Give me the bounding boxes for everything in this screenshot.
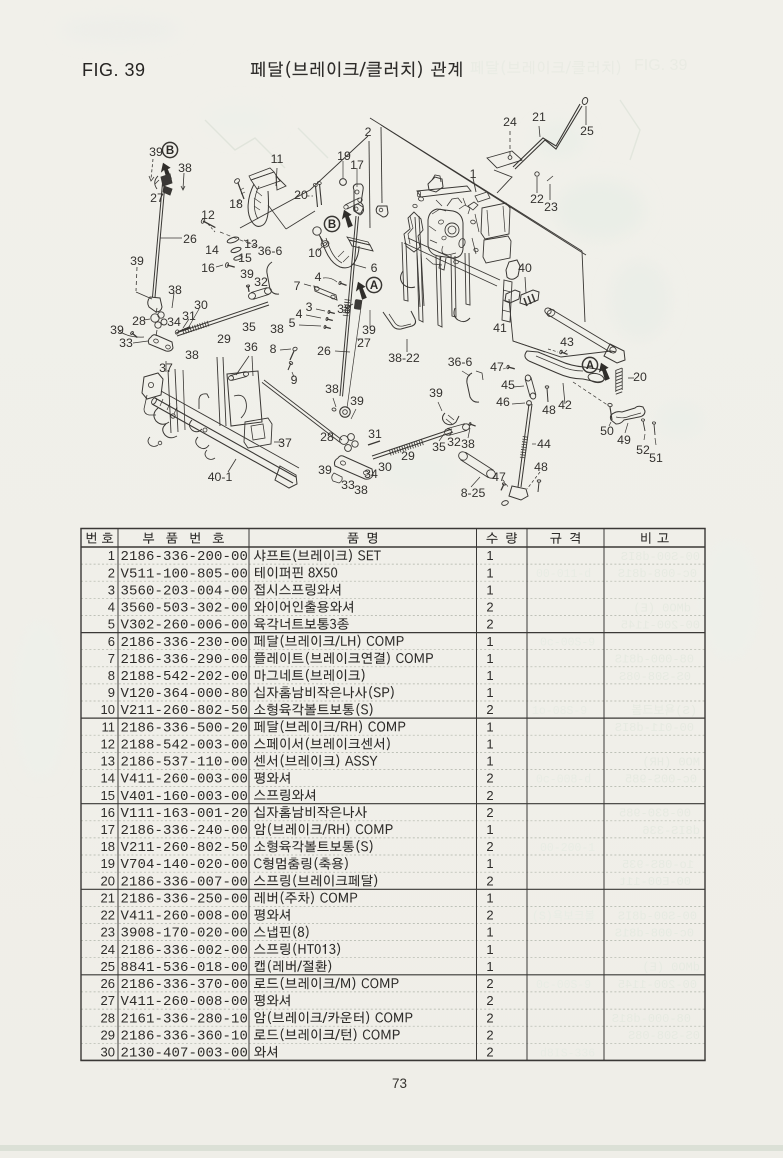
svg-text:00-E00-11t: 00-E00-11t [619,875,691,889]
svg-text:2: 2 [486,702,493,717]
svg-text:29: 29 [101,1027,115,1042]
svg-text:2186-336-500-20: 2186-336-500-20 [121,720,249,736]
svg-text:7: 7 [108,651,115,666]
svg-text:0c-008-d: 0c-008-d [536,774,591,787]
svg-text:27: 27 [101,993,115,1008]
svg-text:21: 21 [101,891,115,906]
svg-text:V511-100-805-00: V511-100-805-00 [121,566,249,582]
svg-text:00-011-d: 00-011-d [536,568,591,581]
svg-text:V302-260-006-00: V302-260-006-00 [121,618,249,634]
svg-text:1: 1 [486,822,493,837]
svg-text:0S-S08-08S: 0S-S08-08S [628,1029,700,1043]
svg-text:(S)욕보크볼: (S)욕보크볼 [532,909,595,923]
svg-text:0c-008-d81S: 0c-008-d81S [618,567,697,581]
svg-text:2186-336-250-00: 2186-336-250-00 [121,892,249,908]
svg-text:00-S00-d8IS: 00-S00-d8IS [618,909,697,923]
svg-text:2186-336-370-00: 2186-336-370-00 [121,977,249,993]
svg-text:1: 1 [486,736,493,751]
svg-text:0S-S08-08S: 0S-S08-08S [619,670,691,684]
svg-text:1: 1 [486,548,493,563]
svg-text:V411-260-008-00: V411-260-008-00 [121,994,249,1010]
svg-text:00-200-1: 00-200-1 [540,842,595,855]
svg-text:1: 1 [486,685,493,700]
svg-text:3560-503-302-00: 3560-503-302-00 [121,601,249,617]
svg-text:00-830-985: 00-830-985 [619,807,691,821]
svg-text:22: 22 [101,908,115,923]
svg-text:2130-407-003-00: 2130-407-003-00 [121,1046,249,1062]
svg-text:2: 2 [486,1027,493,1042]
svg-text:2: 2 [486,617,493,632]
svg-text:2: 2 [486,771,493,786]
svg-text:(S)욕보크볼: (S)욕보크볼 [631,703,697,718]
svg-text:3908-170-020-00: 3908-170-020-00 [121,926,249,942]
svg-text:2: 2 [486,993,493,1008]
svg-text:6: 6 [108,634,115,649]
svg-text:V411-260-003-00: V411-260-003-00 [121,772,249,788]
svg-text:25: 25 [101,959,115,974]
svg-text:V401-160-003-00: V401-160-003-00 [121,789,249,805]
svg-text:4: 4 [108,600,115,615]
svg-text:2: 2 [486,839,493,854]
svg-text:V411-260-008-00: V411-260-008-00 [121,909,249,925]
svg-text:00-200-1145: 00-200-1145 [618,978,697,992]
svg-text:2186-336-360-10: 2186-336-360-10 [121,1028,249,1044]
svg-text:3560-203-004-00: 3560-203-004-00 [121,583,249,599]
svg-text:V211-260-802-50: V211-260-802-50 [121,840,249,856]
svg-text:2186-336-200-00: 2186-336-200-00 [121,549,249,565]
svg-text:1: 1 [486,754,493,769]
svg-text:1: 1 [486,959,493,974]
svg-text:1: 1 [486,634,493,649]
svg-text:1o-08S-935: 1o-08S-935 [622,858,694,872]
svg-text:2188-542-202-00: 2188-542-202-00 [121,669,249,685]
svg-text:13: 13 [101,754,115,769]
svg-text:11: 11 [102,719,116,734]
svg-text:10: 10 [101,702,115,717]
svg-text:14: 14 [101,771,115,786]
svg-text:16: 16 [101,805,115,820]
svg-text:1o-08S-9: 1o-08S-9 [532,705,587,718]
svg-text:5: 5 [108,617,115,632]
svg-text:1: 1 [486,891,493,906]
svg-text:1: 1 [486,582,493,597]
svg-text:2188-542-003-00: 2188-542-003-00 [121,737,249,753]
svg-text:1: 1 [486,942,493,957]
svg-text:18: 18 [101,839,115,854]
svg-text:9: 9 [108,685,115,700]
svg-text:2: 2 [486,908,493,923]
svg-text:23: 23 [101,925,115,940]
svg-text:00-S00-d8IS: 00-S00-d8IS [621,550,700,564]
svg-text:2186-336-290-00: 2186-336-290-00 [121,652,249,668]
svg-text:26: 26 [101,976,115,991]
svg-text:08-000-d81S: 08-000-d81S [612,1012,691,1026]
svg-text:2: 2 [486,805,493,820]
svg-text:1: 1 [486,719,493,734]
svg-text:2186-336-240-00: 2186-336-240-00 [121,823,249,839]
svg-text:2186-537-110-00: 2186-537-110-00 [121,755,249,771]
svg-text:V120-364-000-80: V120-364-000-80 [121,686,249,702]
svg-text:0c-00S-9: 0c-00S-9 [540,637,595,650]
svg-text:2186-336-230-00: 2186-336-230-00 [121,635,249,651]
svg-text:8: 8 [108,668,115,683]
svg-text:dMO0 (E): dMO0 (E) [642,961,700,975]
svg-text:2161-336-280-10: 2161-336-280-10 [121,1011,249,1027]
svg-text:28: 28 [101,1010,115,1025]
svg-text:MO0 (HR): MO0 (HR) [642,755,700,769]
svg-text:2: 2 [486,600,493,615]
svg-text:30: 30 [101,1045,115,1060]
svg-text:V704-140-020-00: V704-140-020-00 [121,857,249,873]
svg-text:1: 1 [486,651,493,666]
svg-text:24: 24 [101,942,115,957]
svg-text:2186-336-002-00: 2186-336-002-00 [121,943,249,959]
svg-text:2: 2 [486,1010,493,1025]
svg-text:V111-163-001-20: V111-163-001-20 [121,806,249,822]
svg-text:1: 1 [108,548,115,563]
svg-text:15: 15 [101,788,115,803]
svg-text:V211-260-802-50: V211-260-802-50 [121,703,249,719]
svg-text:2: 2 [486,976,493,991]
svg-text:d8IS-336: d8IS-336 [540,1047,595,1060]
svg-text:2: 2 [486,1045,493,1060]
svg-text:00-200-1145: 00-200-1145 [621,619,700,633]
svg-text:2186-336-007-00: 2186-336-007-00 [121,874,249,890]
svg-text:1: 1 [486,925,493,940]
svg-text:08-000-d81S: 08-000-d81S [615,653,694,667]
svg-text:1: 1 [486,856,493,871]
svg-text:d8IS-336: d8IS-336 [642,824,700,838]
svg-text:17: 17 [101,822,115,837]
svg-text:20: 20 [101,873,115,888]
svg-text:8841-536-018-00: 8841-536-018-00 [121,960,249,976]
svg-text:2: 2 [486,873,493,888]
svg-text:2: 2 [108,565,115,580]
svg-text:0c-00S-9: 0c-00S-9 [536,979,591,992]
svg-text:dMO0 (E): dMO0 (E) [633,601,691,615]
svg-text:1: 1 [486,565,493,580]
svg-text:0c-008-d81S: 0c-008-d81S [615,927,694,941]
svg-text:19: 19 [101,856,115,871]
svg-text:0c-00S-985: 0c-00S-985 [625,773,697,787]
svg-text:1: 1 [486,668,493,683]
svg-text:2: 2 [486,788,493,803]
svg-text:00-011-d8IS: 00-011-d8IS [615,721,694,735]
svg-text:3: 3 [108,582,115,597]
svg-text:12: 12 [101,736,115,751]
